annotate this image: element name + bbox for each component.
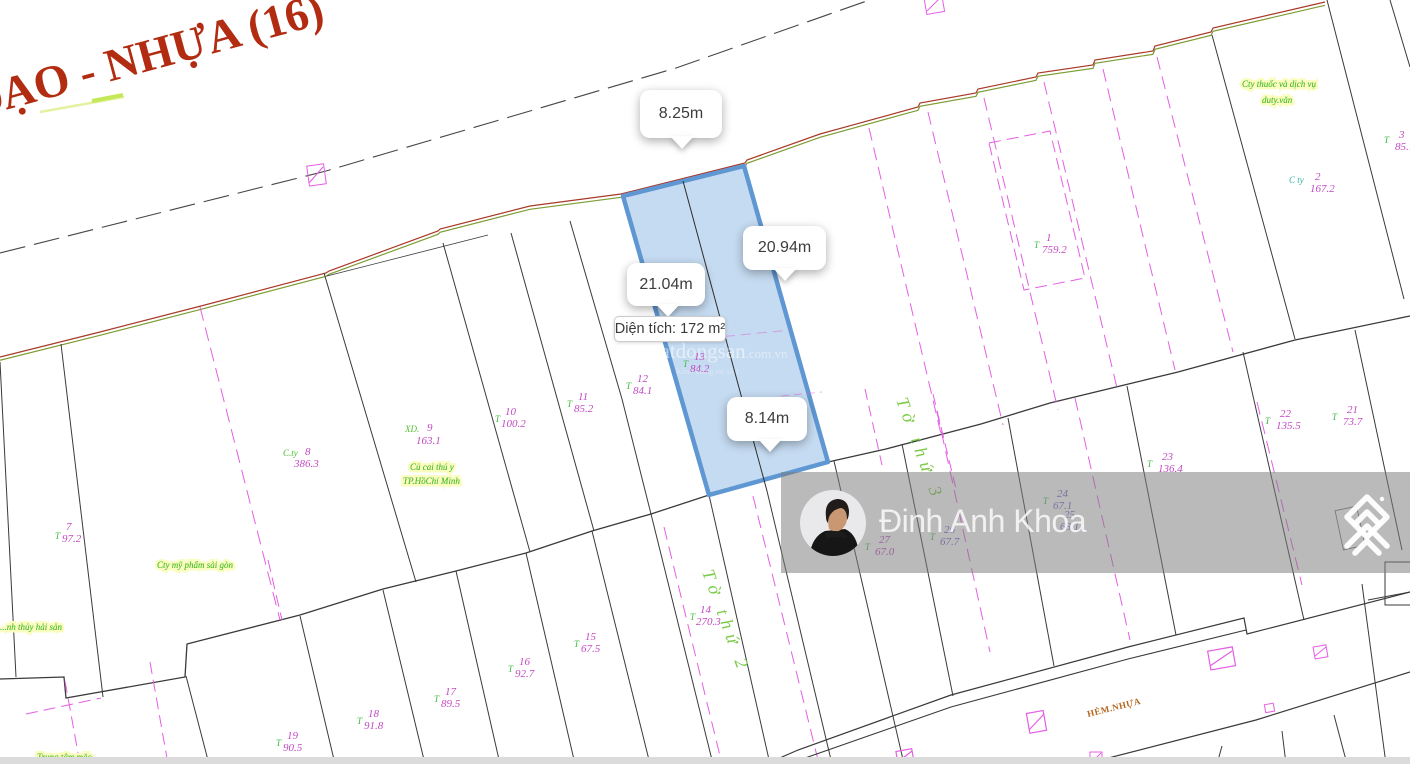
svg-text:91.8: 91.8 — [364, 720, 384, 732]
svg-text:T: T — [1147, 459, 1153, 469]
svg-text:T: T — [1034, 240, 1040, 250]
svg-text:T: T — [434, 694, 440, 704]
svg-text:T: T — [1265, 416, 1271, 426]
svg-text:10: 10 — [505, 406, 517, 418]
svg-text:759.2: 759.2 — [1042, 244, 1067, 256]
svg-text:67.5: 67.5 — [581, 643, 601, 655]
svg-text:T: T — [626, 381, 632, 391]
svg-text:73.7: 73.7 — [1343, 416, 1363, 428]
svg-text:C ty: C ty — [1289, 175, 1304, 185]
svg-text:85.2: 85.2 — [574, 403, 594, 415]
svg-text:15: 15 — [585, 631, 597, 643]
svg-text:Củ cai thú y: Củ cai thú y — [410, 462, 454, 472]
svg-text:T: T — [567, 399, 573, 409]
svg-text:163.1: 163.1 — [416, 435, 441, 447]
svg-text:1: 1 — [1046, 232, 1052, 244]
svg-text:97.2: 97.2 — [62, 533, 82, 545]
svg-text:16: 16 — [519, 656, 531, 668]
svg-text:XD.: XD. — [404, 424, 419, 434]
svg-text:23: 23 — [1162, 451, 1174, 463]
svg-text:92.7: 92.7 — [515, 668, 535, 680]
svg-text:7: 7 — [66, 521, 72, 533]
svg-text:Cty mỹ phẩm sài gòn: Cty mỹ phẩm sài gòn — [157, 560, 233, 570]
svg-text:C.ty: C.ty — [283, 448, 298, 458]
svg-text:T: T — [574, 639, 580, 649]
svg-text:18: 18 — [368, 708, 380, 720]
svg-text:21: 21 — [1347, 404, 1358, 416]
svg-text:...nh thủy hải sản: ...nh thủy hải sản — [0, 622, 62, 632]
svg-text:167.2: 167.2 — [1310, 183, 1335, 195]
svg-text:Kênh thông tin số 1: Kênh thông tin số 1 — [676, 367, 739, 376]
svg-text:T: T — [1332, 412, 1338, 422]
svg-text:14: 14 — [700, 604, 712, 616]
svg-text:TP.HồChí Minh: TP.HồChí Minh — [403, 476, 460, 486]
svg-text:386.3: 386.3 — [293, 458, 319, 470]
svg-text:duty.văn: duty.văn — [1262, 95, 1293, 105]
svg-text:85.7: 85.7 — [1395, 141, 1410, 153]
svg-text:T: T — [55, 531, 61, 541]
svg-text:17: 17 — [445, 686, 457, 698]
svg-text:19: 19 — [287, 730, 299, 742]
svg-text:Cty thuốc và dịch vụ: Cty thuốc và dịch vụ — [1242, 79, 1316, 89]
svg-text:3: 3 — [1398, 129, 1405, 141]
svg-text:22: 22 — [1280, 408, 1292, 420]
svg-text:89.5: 89.5 — [441, 698, 461, 710]
svg-text:84.1: 84.1 — [633, 385, 652, 397]
svg-text:8: 8 — [305, 446, 311, 458]
svg-text:T: T — [508, 664, 514, 674]
svg-text:T: T — [1384, 135, 1390, 145]
svg-text:90.5: 90.5 — [283, 742, 303, 754]
svg-text:12: 12 — [637, 373, 649, 385]
svg-text:2: 2 — [1315, 171, 1321, 183]
svg-text:T: T — [276, 738, 282, 748]
svg-text:T: T — [357, 716, 363, 726]
svg-text:100.2: 100.2 — [501, 418, 526, 430]
svg-text:9: 9 — [427, 422, 433, 434]
svg-text:135.5: 135.5 — [1276, 420, 1301, 432]
svg-text:11: 11 — [578, 391, 588, 403]
svg-text:HẺM.NHỰA: HẺM.NHỰA — [1086, 696, 1142, 719]
